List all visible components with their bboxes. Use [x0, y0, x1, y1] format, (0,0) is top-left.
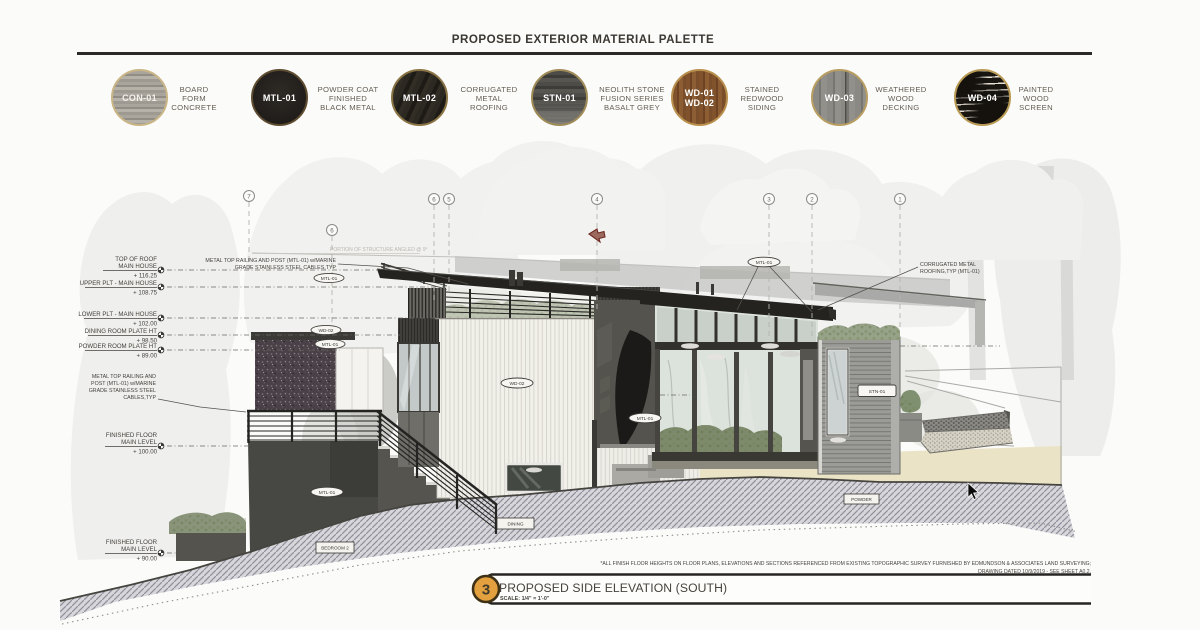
svg-text:6: 6 [432, 197, 436, 204]
svg-text:POWDER ROOM PLATE HT: POWDER ROOM PLATE HT [79, 343, 158, 350]
svg-text:MTL-01: MTL-01 [322, 342, 339, 348]
svg-text:5: 5 [447, 197, 451, 204]
svg-text:3: 3 [482, 582, 490, 599]
svg-text:FINISHED FLOOR: FINISHED FLOOR [106, 432, 158, 439]
svg-text:WD-02: WD-02 [319, 328, 334, 334]
svg-text:7: 7 [247, 194, 251, 201]
svg-text:4: 4 [595, 197, 599, 204]
svg-text:1: 1 [898, 197, 902, 204]
svg-text:+ 108.75: + 108.75 [133, 290, 158, 297]
svg-text:CORRUGATED METAL: CORRUGATED METAL [920, 262, 976, 268]
svg-text:WD-02: WD-02 [510, 381, 525, 387]
svg-text:DINING: DINING [507, 522, 524, 527]
svg-text:LOWER PLT - MAIN HOUSE: LOWER PLT - MAIN HOUSE [78, 311, 157, 318]
svg-text:+ 116.25: + 116.25 [134, 273, 158, 280]
svg-text:PROPOSED SIDE ELEVATION (SOUTH: PROPOSED SIDE ELEVATION (SOUTH) [499, 581, 727, 595]
svg-text:POWDER: POWDER [851, 497, 872, 502]
svg-text:6: 6 [330, 228, 334, 235]
svg-text:MAIN LEVEL: MAIN LEVEL [121, 546, 158, 553]
svg-text:3: 3 [767, 197, 771, 204]
svg-text:ROOFING,TYP (MTL-01): ROOFING,TYP (MTL-01) [920, 269, 980, 275]
svg-text:METAL TOP RAILING AND POST (MT: METAL TOP RAILING AND POST (MTL-01) w/MA… [205, 258, 336, 264]
svg-text:TOP OF ROOF: TOP OF ROOF [115, 256, 157, 263]
svg-text:+ 90.00: + 90.00 [136, 556, 157, 563]
svg-text:BEDROOM 2: BEDROOM 2 [321, 546, 349, 551]
svg-text:GRADE STAINLESS STEEL: GRADE STAINLESS STEEL [89, 388, 156, 394]
svg-text:SCALE: 1/4" = 1'-0": SCALE: 1/4" = 1'-0" [500, 596, 550, 602]
svg-text:MAIN HOUSE: MAIN HOUSE [118, 263, 157, 270]
svg-text:MTL-01: MTL-01 [321, 276, 338, 282]
svg-text:MTL-01: MTL-01 [319, 490, 336, 496]
svg-text:POST (MTL-01) w/MARINE: POST (MTL-01) w/MARINE [91, 381, 156, 387]
svg-text:*ALL FINISH FLOOR HEIGHTS ON F: *ALL FINISH FLOOR HEIGHTS ON FLOOR PLANS… [600, 561, 1091, 567]
svg-text:2: 2 [810, 197, 814, 204]
svg-text:MTL-01: MTL-01 [756, 260, 773, 266]
svg-text:DINING ROOM PLATE HT: DINING ROOM PLATE HT [85, 328, 158, 335]
svg-text:PORTION OF STRUCTURE ANGLED @: PORTION OF STRUCTURE ANGLED @ 9° [330, 247, 428, 253]
svg-text:FINISHED FLOOR: FINISHED FLOOR [106, 539, 158, 546]
svg-text:CABLES,TYP: CABLES,TYP [123, 395, 156, 401]
svg-text:+ 102.00: + 102.00 [133, 321, 158, 328]
svg-text:METAL TOP RAILING AND: METAL TOP RAILING AND [92, 374, 156, 380]
svg-text:GRADE STAINLESS STEEL CABLES,T: GRADE STAINLESS STEEL CABLES,TYP [235, 265, 337, 271]
svg-text:MTL-01: MTL-01 [637, 416, 654, 422]
svg-text:+ 100.00: + 100.00 [133, 449, 158, 456]
svg-text:UPPER PLT - MAIN HOUSE: UPPER PLT - MAIN HOUSE [80, 280, 157, 287]
svg-text:MAIN LEVEL: MAIN LEVEL [121, 439, 158, 446]
svg-text:+ 89.00: + 89.00 [136, 353, 157, 360]
svg-text:STN-01: STN-01 [869, 389, 886, 395]
